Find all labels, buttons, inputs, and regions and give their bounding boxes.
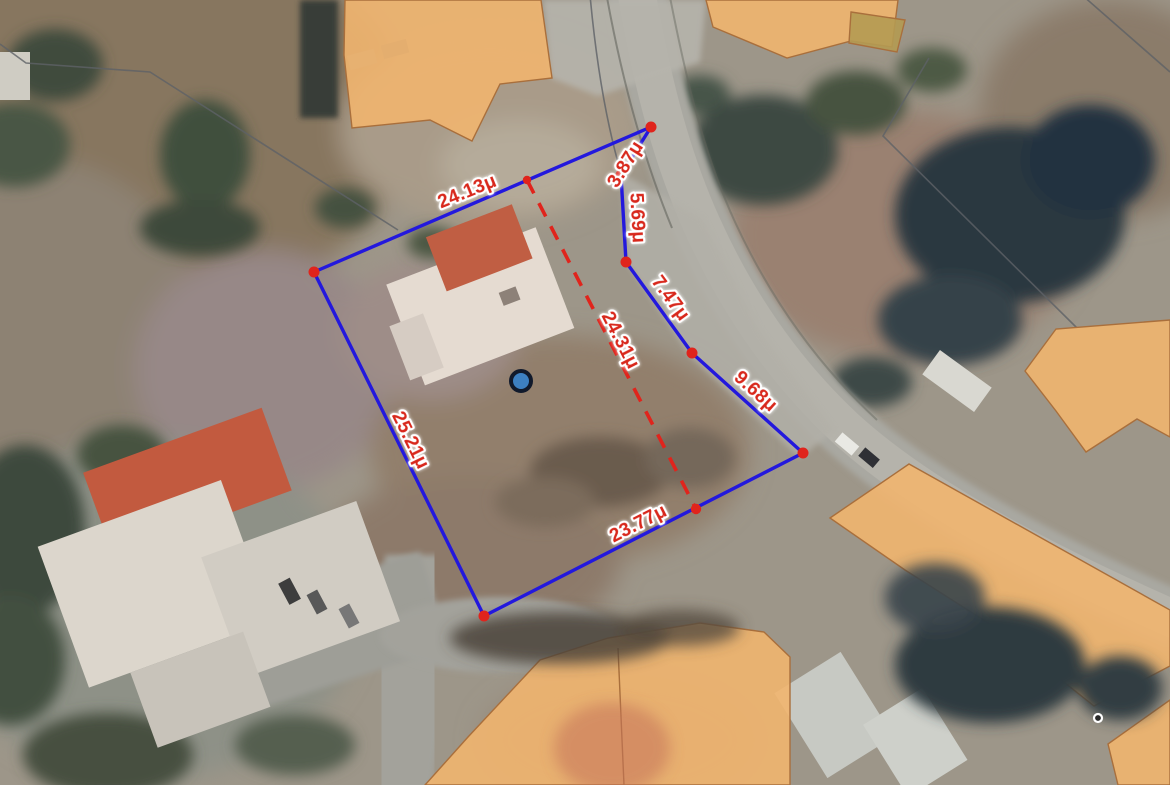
parcel-vertex-handle[interactable]: [687, 348, 698, 359]
map-viewport[interactable]: 24.13μ3.87μ5.69μ7.47μ9.68μ25.21μ23.77μ24…: [0, 0, 1170, 785]
parcel-point-marker[interactable]: [511, 371, 531, 391]
measurement-label: 5.69μ: [625, 192, 649, 244]
poi-dot[interactable]: [1094, 714, 1102, 722]
parcel-vertex-handle[interactable]: [621, 257, 632, 268]
measurement-label: 24.31μ: [597, 308, 644, 372]
parcel-vertex-handle[interactable]: [798, 448, 809, 459]
parcel-vertex-handle[interactable]: [309, 267, 320, 278]
parcel-boundary-polygon[interactable]: [314, 127, 803, 616]
measurement-label: 23.77μ: [606, 501, 670, 548]
parcel-vertex-handle[interactable]: [646, 122, 657, 133]
measurement-overlay: 24.13μ3.87μ5.69μ7.47μ9.68μ25.21μ23.77μ24…: [0, 0, 1170, 785]
parcel-vertex-handle[interactable]: [479, 611, 490, 622]
diagonal-endpoint-handle[interactable]: [523, 176, 531, 184]
measurement-label: 25.21μ: [387, 408, 433, 473]
diagonal-endpoint-handle[interactable]: [691, 504, 701, 514]
